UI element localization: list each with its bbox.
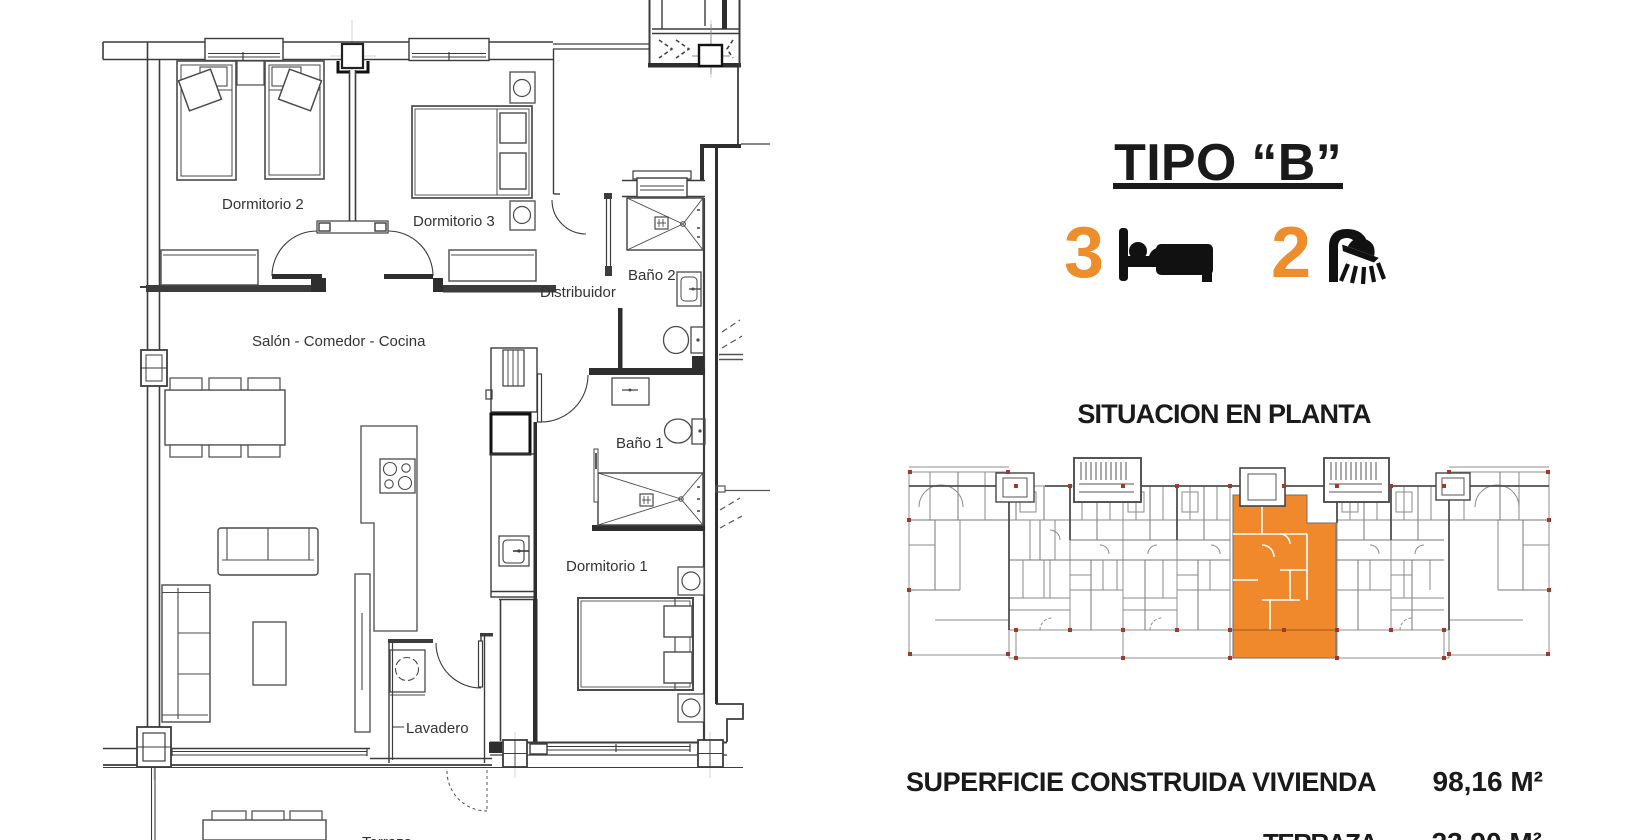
svg-text:Terraza: Terraza — [362, 834, 413, 840]
svg-text:3: 3 — [1064, 213, 1104, 293]
svg-text:SUPERFICIE CONSTRUIDA VIVIENDA: SUPERFICIE CONSTRUIDA VIVIENDA — [906, 767, 1376, 797]
svg-text:Salón - Comedor - Cocina: Salón - Comedor - Cocina — [252, 333, 426, 350]
svg-text:2: 2 — [1271, 213, 1311, 293]
svg-text:Dormitorio 2: Dormitorio 2 — [222, 196, 304, 213]
svg-text:23,90 M²: 23,90 M² — [1432, 827, 1543, 840]
svg-text:98,16 M²: 98,16 M² — [1433, 766, 1544, 797]
svg-text:Baño 2: Baño 2 — [628, 267, 676, 284]
svg-text:SITUACION EN PLANTA: SITUACION EN PLANTA — [1077, 399, 1371, 429]
svg-text:Dormitorio 3: Dormitorio 3 — [413, 213, 495, 230]
svg-text:Baño 1: Baño 1 — [616, 435, 664, 452]
svg-text:Distribuidor: Distribuidor — [540, 284, 616, 301]
svg-text:TERRAZA: TERRAZA — [1263, 828, 1378, 840]
svg-text:Lavadero: Lavadero — [406, 720, 469, 737]
svg-text:Dormitorio 1: Dormitorio 1 — [566, 558, 648, 575]
